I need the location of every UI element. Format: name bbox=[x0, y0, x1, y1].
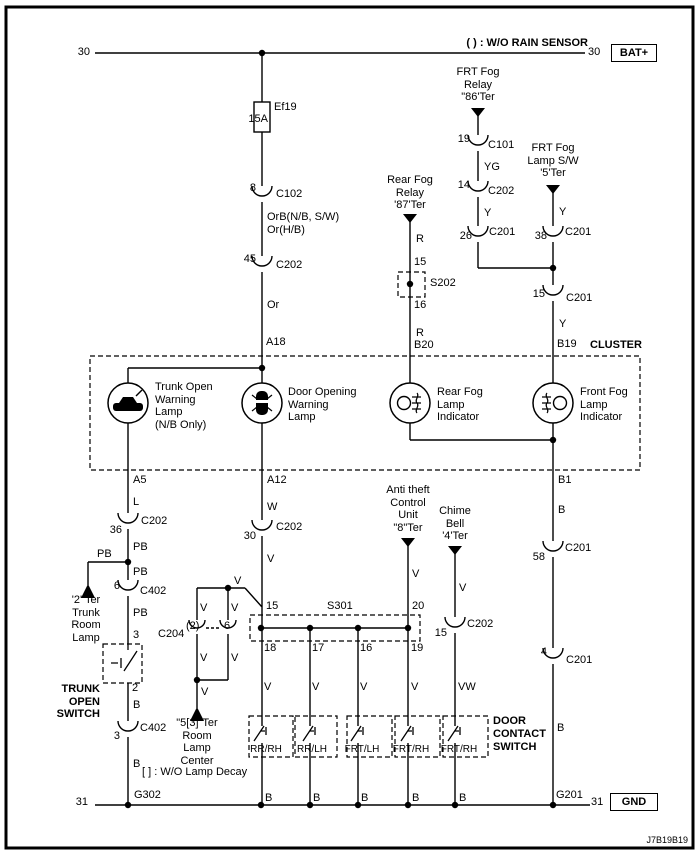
wire-bd16-label: B bbox=[361, 792, 368, 805]
pin-s301-o2-label: 17 bbox=[312, 642, 324, 655]
connector-c204-pin-right: 6 bbox=[224, 620, 230, 633]
ground-g302-label: G302 bbox=[134, 789, 161, 802]
pin-trunk-sw-top-label: 3 bbox=[133, 629, 139, 642]
rail-30-left-label: 30 bbox=[60, 46, 90, 59]
pin-a5-label: A5 bbox=[133, 474, 146, 487]
trunk-open-warning-lamp-label: Trunk Open Warning Lamp (N/B Only) bbox=[155, 381, 213, 431]
connector-c201-4-name: C201 bbox=[566, 654, 592, 667]
wire-btrunkg-label: B bbox=[133, 758, 140, 771]
anti-theft-arrow-icon bbox=[401, 538, 415, 547]
wire-pb1-label: PB bbox=[133, 541, 148, 554]
wire-or-label: Or bbox=[267, 299, 279, 312]
connector-c101-name: C101 bbox=[488, 139, 514, 152]
fuse-name-label: Ef19 bbox=[274, 101, 297, 114]
bat-terminal-box: BAT+ bbox=[611, 44, 657, 62]
rail-31-right-label: 31 bbox=[591, 796, 603, 809]
cluster-label: CLUSTER bbox=[590, 339, 642, 352]
connector-c201-38-pin: 38 bbox=[533, 230, 547, 243]
door-contact-switch-label: DOOR CONTACT SWITCH bbox=[493, 715, 546, 754]
trunk-open-switch-icon bbox=[111, 644, 137, 671]
wire-yg-label: YG bbox=[484, 161, 500, 174]
connector-c202-15-pin: 15 bbox=[433, 627, 447, 640]
frt-fog-relay-arrow-icon bbox=[471, 108, 485, 117]
trunk-open-switch-label: TRUNK OPEN SWITCH bbox=[38, 683, 100, 721]
wire-y14-label: Y bbox=[484, 207, 491, 220]
door-switch-icon-2 bbox=[303, 726, 315, 741]
door-switch-icon-4 bbox=[401, 726, 413, 741]
connector-c402-6-pin: 6 bbox=[110, 580, 120, 593]
door-switch-label-1: RR/RH bbox=[250, 744, 282, 755]
room-lamp-center-label: "5[3]"Ter Room Lamp Center bbox=[176, 717, 217, 767]
connector-c204-pin-left: (2) bbox=[186, 620, 199, 633]
pin-s301-o1-label: 18 bbox=[264, 642, 276, 655]
rain-sensor-note: ( ) : W/O RAIN SENSOR bbox=[440, 37, 588, 50]
connector-c204-name: C204 bbox=[158, 628, 184, 641]
connector-c201-26-pin: 26 bbox=[458, 230, 472, 243]
wire-vc204-rt-label: V bbox=[231, 602, 238, 615]
front-fog-lamp-indicator-label: Front Fog Lamp Indicator bbox=[580, 386, 628, 424]
wire-vmain-label: V bbox=[267, 553, 274, 566]
connector-c201-15-pin: 15 bbox=[531, 288, 545, 301]
pin-s202-bot-label: 16 bbox=[414, 299, 426, 312]
wire-v18-label: V bbox=[264, 681, 271, 694]
connector-c202-14-pin: 14 bbox=[456, 179, 470, 192]
connector-c201-15-name: C201 bbox=[566, 292, 592, 305]
wiring-diagram-page: 30 ( ) : W/O RAIN SENSOR 30 BAT+ Ef19 15… bbox=[0, 0, 700, 856]
pin-trunk-sw-bot-label: 2 bbox=[132, 682, 138, 695]
wire-w-label: W bbox=[267, 501, 277, 514]
connector-c102-name: C102 bbox=[276, 188, 302, 201]
wire-rbot-label: R bbox=[416, 327, 424, 340]
rail-30-right-label: 30 bbox=[588, 46, 600, 59]
frt-fog-lamp-sw-arrow-icon bbox=[546, 185, 560, 194]
connector-c202-30-name: C202 bbox=[276, 521, 302, 534]
connector-c402-6-name: C402 bbox=[140, 585, 166, 598]
connector-c102-pin: 8 bbox=[242, 182, 256, 195]
anti-theft-unit-label: Anti theft Control Unit "8"Ter bbox=[386, 484, 429, 534]
door-switch-label-2: RR/LH bbox=[297, 744, 327, 755]
wire-pb-branch-label: PB bbox=[97, 548, 112, 561]
connector-c202-36-pin: 36 bbox=[108, 524, 122, 537]
wire-pb2-label: PB bbox=[133, 566, 148, 579]
pin-b1-label: B1 bbox=[558, 474, 571, 487]
wire-bchime-label: B bbox=[459, 792, 466, 805]
frt-fog-lamp-sw-label: FRT Fog Lamp S/W '5'Ter bbox=[527, 142, 578, 180]
door-switch-label-4: FRT/RH bbox=[393, 744, 429, 755]
door-switch-label-5: FRT/RH bbox=[441, 744, 477, 755]
connector-c202-30-pin: 30 bbox=[240, 530, 256, 543]
frt-fog-relay-label: FRT Fog Relay "86'Ter bbox=[457, 66, 500, 104]
rear-fog-relay-label: Rear Fog Relay '87'Ter bbox=[387, 174, 433, 212]
wire-l-label: L bbox=[133, 496, 139, 509]
connector-c202-15-name: C202 bbox=[467, 618, 493, 631]
chime-bell-arrow-icon bbox=[448, 546, 462, 555]
fuse-rating-label: 15A bbox=[240, 113, 268, 126]
wire-vc204-rb-label: V bbox=[231, 652, 238, 665]
trunk-open-switch-box bbox=[103, 644, 142, 683]
door-switch-icon-1 bbox=[254, 726, 266, 741]
connector-c201-38-name: C201 bbox=[565, 226, 591, 239]
wire-bd17-label: B bbox=[313, 792, 320, 805]
connector-c201-58-name: C201 bbox=[565, 542, 591, 555]
connector-c202-45-pin: 45 bbox=[240, 253, 256, 266]
pin-a12-label: A12 bbox=[267, 474, 287, 487]
pin-s301-o3-label: 16 bbox=[360, 642, 372, 655]
connector-c202-45-name: C202 bbox=[276, 259, 302, 272]
wire-rtop-label: R bbox=[416, 233, 424, 246]
wire-vroom-label: V bbox=[201, 686, 208, 699]
wire-bb1-label: B bbox=[558, 504, 565, 517]
wire-bd18-label: B bbox=[265, 792, 272, 805]
connector-c402-3-pin: 3 bbox=[110, 730, 120, 743]
wire-pb3-label: PB bbox=[133, 607, 148, 620]
wire-vw-label: VW bbox=[458, 681, 476, 694]
wire-orb-label: OrB(N/B, S/W) bbox=[267, 211, 339, 224]
ground-g201-label: G201 bbox=[556, 789, 583, 802]
wire-vbranch-label: V bbox=[234, 575, 241, 588]
page-border bbox=[6, 7, 693, 848]
rear-fog-lamp-indicator-label: Rear Fog Lamp Indicator bbox=[437, 386, 483, 424]
wire-btrunksw-label: B bbox=[133, 699, 140, 712]
wire-orhb-label: Or(H/B) bbox=[267, 224, 305, 237]
wire-vat-label: V bbox=[412, 568, 419, 581]
wire-vc204-lt-label: V bbox=[200, 602, 207, 615]
wiring-diagram-graphics bbox=[0, 0, 700, 856]
connector-c202-36-name: C202 bbox=[141, 515, 167, 528]
door-opening-warning-lamp-label: Door Opening Warning Lamp bbox=[288, 386, 357, 424]
wire-ysw-label: Y bbox=[559, 206, 566, 219]
drawing-number-label: J7B19B19 bbox=[636, 835, 688, 845]
connector-c201-26-name: C201 bbox=[489, 226, 515, 239]
wire-vc204-lb-label: V bbox=[200, 652, 207, 665]
connector-c201-4-pin: 4 bbox=[537, 646, 547, 659]
pin-s301-o4-label: 19 bbox=[411, 642, 423, 655]
door-switch-label-3: FRT/LH bbox=[345, 744, 380, 755]
trunk-room-lamp-label: '2' Ter Trunk Room Lamp bbox=[71, 594, 100, 644]
chime-bell-label: Chime Bell '4'Ter bbox=[439, 505, 471, 543]
gnd-terminal-box: GND bbox=[610, 793, 658, 811]
pin-s301-left-label: 15 bbox=[266, 600, 278, 613]
pin-a18-label: A18 bbox=[266, 336, 286, 349]
door-switch-icon-5 bbox=[448, 726, 460, 741]
lamp-decay-note: [ ] : W/O Lamp Decay bbox=[142, 766, 247, 779]
wire-v17-label: V bbox=[312, 681, 319, 694]
splice-s202-label: S202 bbox=[430, 277, 456, 290]
connector-c202-14-name: C202 bbox=[488, 185, 514, 198]
splice-s301-label: S301 bbox=[327, 600, 353, 613]
wire-v16-label: V bbox=[360, 681, 367, 694]
pin-b19-label: B19 bbox=[557, 338, 577, 351]
pin-b20-label: B20 bbox=[414, 339, 434, 352]
wire-vchime-label: V bbox=[459, 582, 466, 595]
connector-c402-3-name: C402 bbox=[140, 722, 166, 735]
wire-bd19-label: B bbox=[412, 792, 419, 805]
rear-fog-relay-arrow-icon bbox=[403, 214, 417, 223]
pin-s301-right-label: 20 bbox=[412, 600, 424, 613]
rail-31-left-label: 31 bbox=[64, 796, 88, 809]
pin-s202-top-label: 15 bbox=[414, 256, 426, 269]
wire-yb19-label: Y bbox=[559, 318, 566, 331]
door-switch-icon-3 bbox=[351, 726, 363, 741]
wire-v19-label: V bbox=[411, 681, 418, 694]
connector-c201-58-pin: 58 bbox=[531, 551, 545, 564]
connector-c101-pin: 19 bbox=[456, 133, 470, 146]
wire-bfrontfog-label: B bbox=[557, 722, 564, 735]
